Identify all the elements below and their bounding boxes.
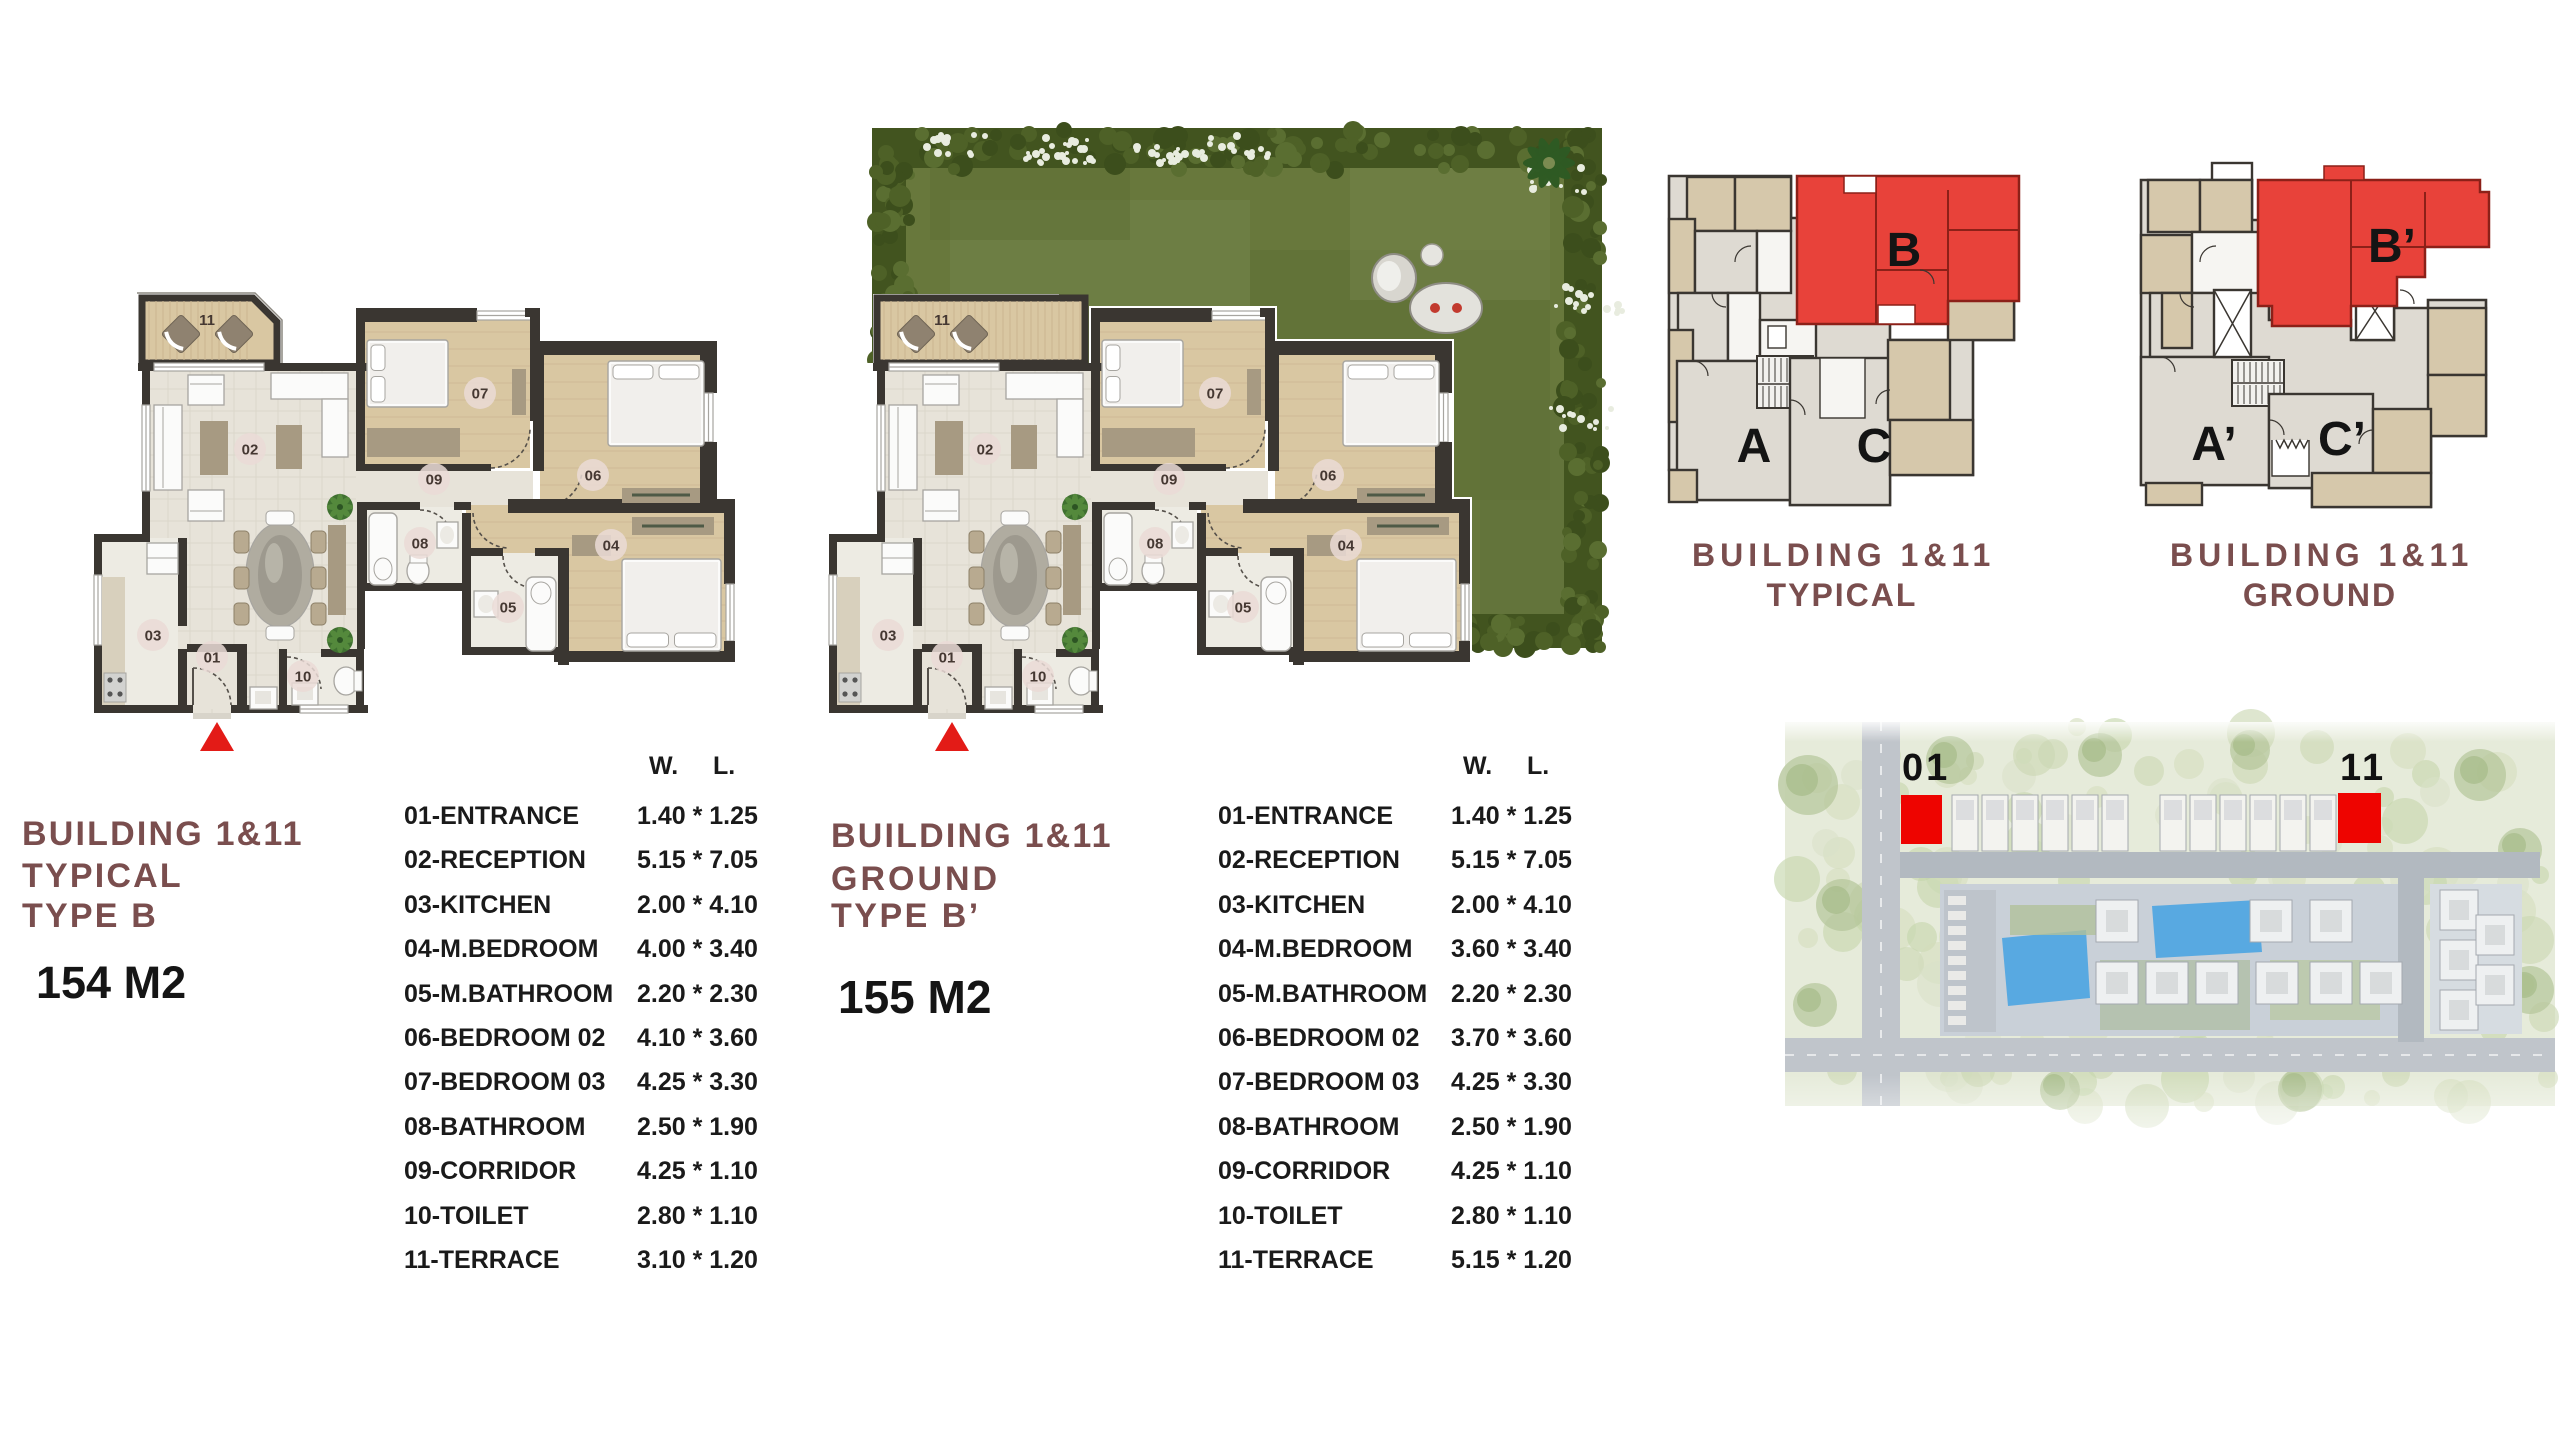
svg-text:A: A (1737, 420, 1772, 473)
svg-text:B: B (1887, 224, 1922, 277)
svg-text:B’: B’ (2368, 220, 2416, 273)
svg-text:11: 11 (934, 312, 950, 329)
svg-text:07: 07 (1207, 385, 1224, 402)
svg-text:08: 08 (412, 535, 429, 552)
svg-text:01: 01 (1902, 747, 1950, 789)
svg-text:09: 09 (426, 471, 443, 488)
svg-text:11: 11 (2340, 747, 2386, 789)
svg-text:03: 03 (145, 627, 162, 644)
svg-text:11: 11 (199, 312, 215, 329)
svg-text:10: 10 (295, 668, 312, 685)
svg-text:03: 03 (880, 627, 897, 644)
svg-text:A’: A’ (2191, 418, 2236, 471)
svg-text:04: 04 (1338, 537, 1355, 554)
svg-text:08: 08 (1147, 535, 1164, 552)
svg-text:02: 02 (977, 441, 994, 458)
svg-text:10: 10 (1030, 668, 1047, 685)
svg-text:04: 04 (603, 537, 620, 554)
svg-text:01: 01 (939, 649, 956, 666)
svg-text:C: C (1857, 420, 1892, 473)
svg-text:05: 05 (1235, 599, 1252, 616)
svg-text:07: 07 (472, 385, 489, 402)
svg-text:01: 01 (204, 649, 221, 666)
svg-text:06: 06 (585, 467, 602, 484)
svg-text:02: 02 (242, 441, 259, 458)
svg-text:09: 09 (1161, 471, 1178, 488)
svg-text:C’: C’ (2318, 413, 2366, 466)
svg-text:06: 06 (1320, 467, 1337, 484)
svg-text:05: 05 (500, 599, 517, 616)
